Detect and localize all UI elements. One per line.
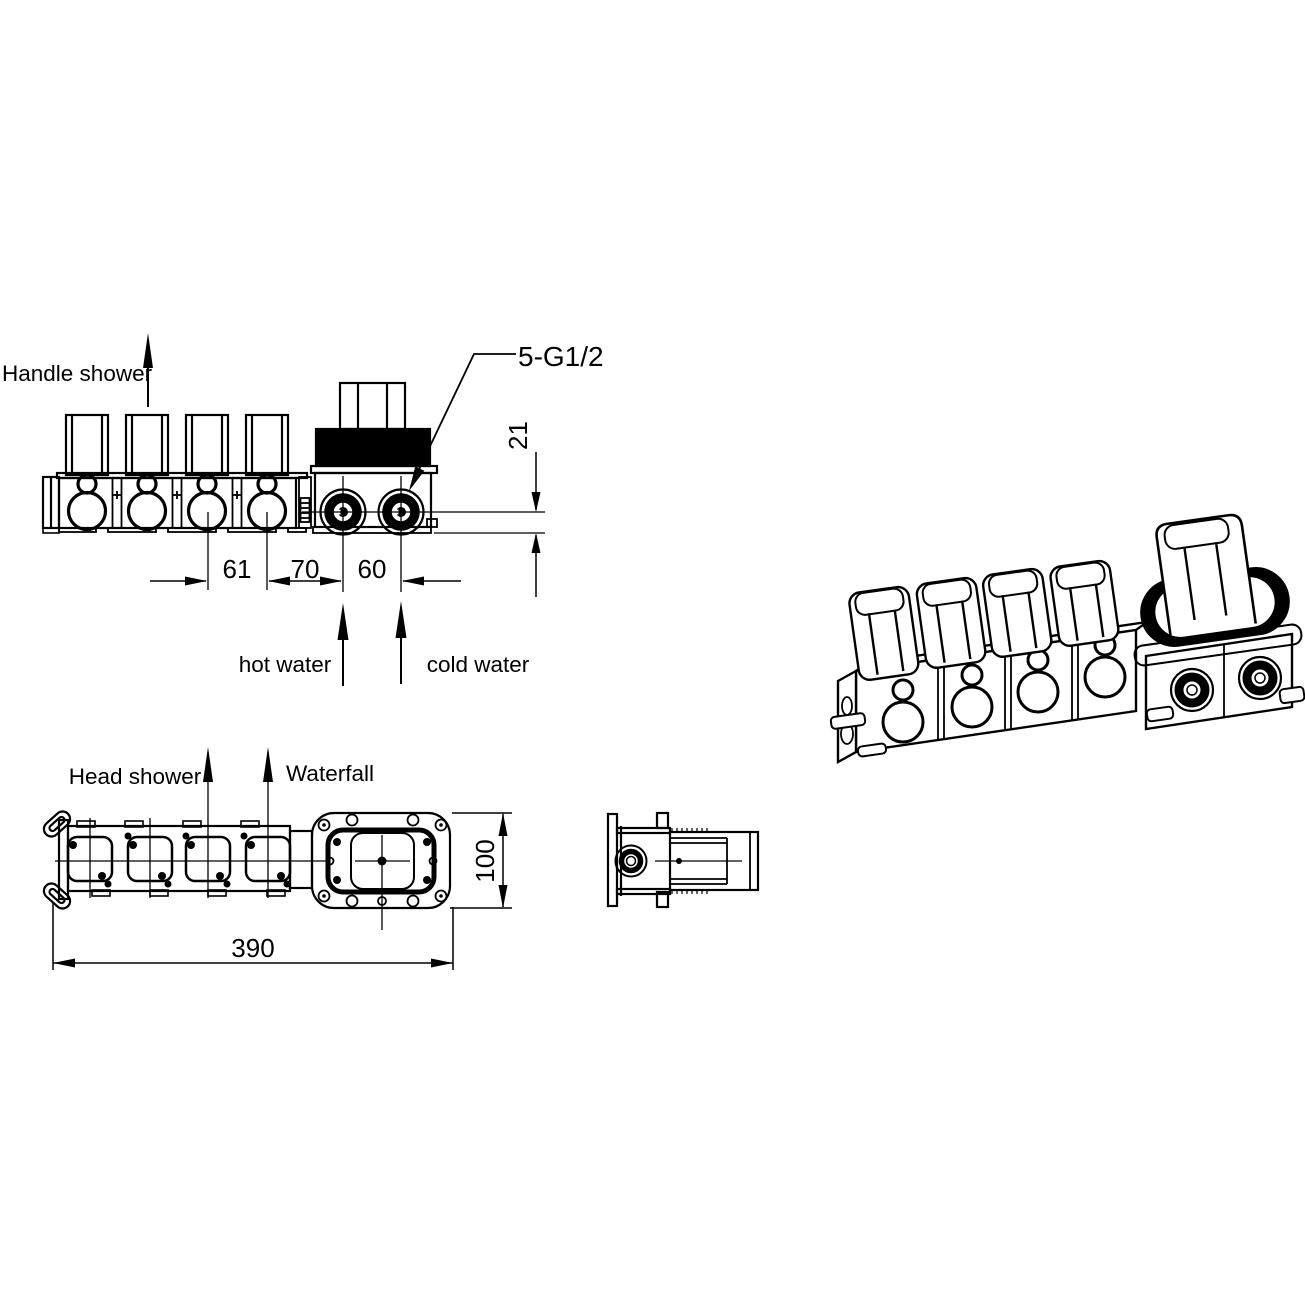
front-coupling: [299, 477, 311, 528]
dim-body-width: 100: [470, 839, 500, 882]
thermostat-black-band: [316, 429, 430, 466]
top-connector: [290, 831, 312, 888]
side-view: [608, 813, 758, 907]
head-shower-label: Head shower: [69, 764, 202, 789]
iso-thermostatic-module: [1129, 509, 1302, 729]
waterfall-arrowhead: [263, 747, 273, 782]
thread-spec-leader: [409, 354, 516, 491]
waterfall-label: Waterfall: [286, 761, 374, 786]
dim-port-offset: 21: [503, 421, 533, 450]
iso-black-band: [1129, 509, 1293, 650]
dim-valve-spacing: 61: [223, 554, 252, 584]
hot-water-arrow: [338, 603, 349, 686]
front-left-end-bracket: [43, 477, 59, 533]
cold-water-label: cold water: [427, 652, 530, 677]
thread-spec-label: 5-G1/2: [518, 341, 604, 372]
shower-valve-drawing: 61 70 60 21 5-G1/2 Handle shower: [0, 0, 1305, 1305]
thermostat-stem: [340, 383, 405, 429]
top-bolt-dots: [69, 833, 291, 888]
head-shower-arrowhead: [203, 747, 213, 782]
top-thermostatic-end: [312, 813, 450, 930]
dim-hot-to-cold: 60: [358, 554, 387, 584]
top-view: Head shower Waterfall: [41, 747, 512, 970]
side-port: [616, 846, 647, 877]
technical-drawing-page: 61 70 60 21 5-G1/2 Handle shower: [0, 0, 1305, 1305]
front-dim-21: [532, 452, 541, 597]
hot-water-label: hot water: [239, 652, 332, 677]
front-valve-cartridges: [69, 475, 286, 530]
cold-water-arrow: [396, 601, 407, 684]
handle-shower-label: Handle shower: [2, 361, 153, 386]
dim-overall-length: 390: [231, 933, 274, 963]
isometric-view: [830, 509, 1305, 762]
front-valve-stems: [66, 415, 288, 475]
front-view: 61 70 60 21 5-G1/2 Handle shower: [2, 333, 604, 686]
dim-valve-to-hot: 70: [291, 554, 320, 584]
